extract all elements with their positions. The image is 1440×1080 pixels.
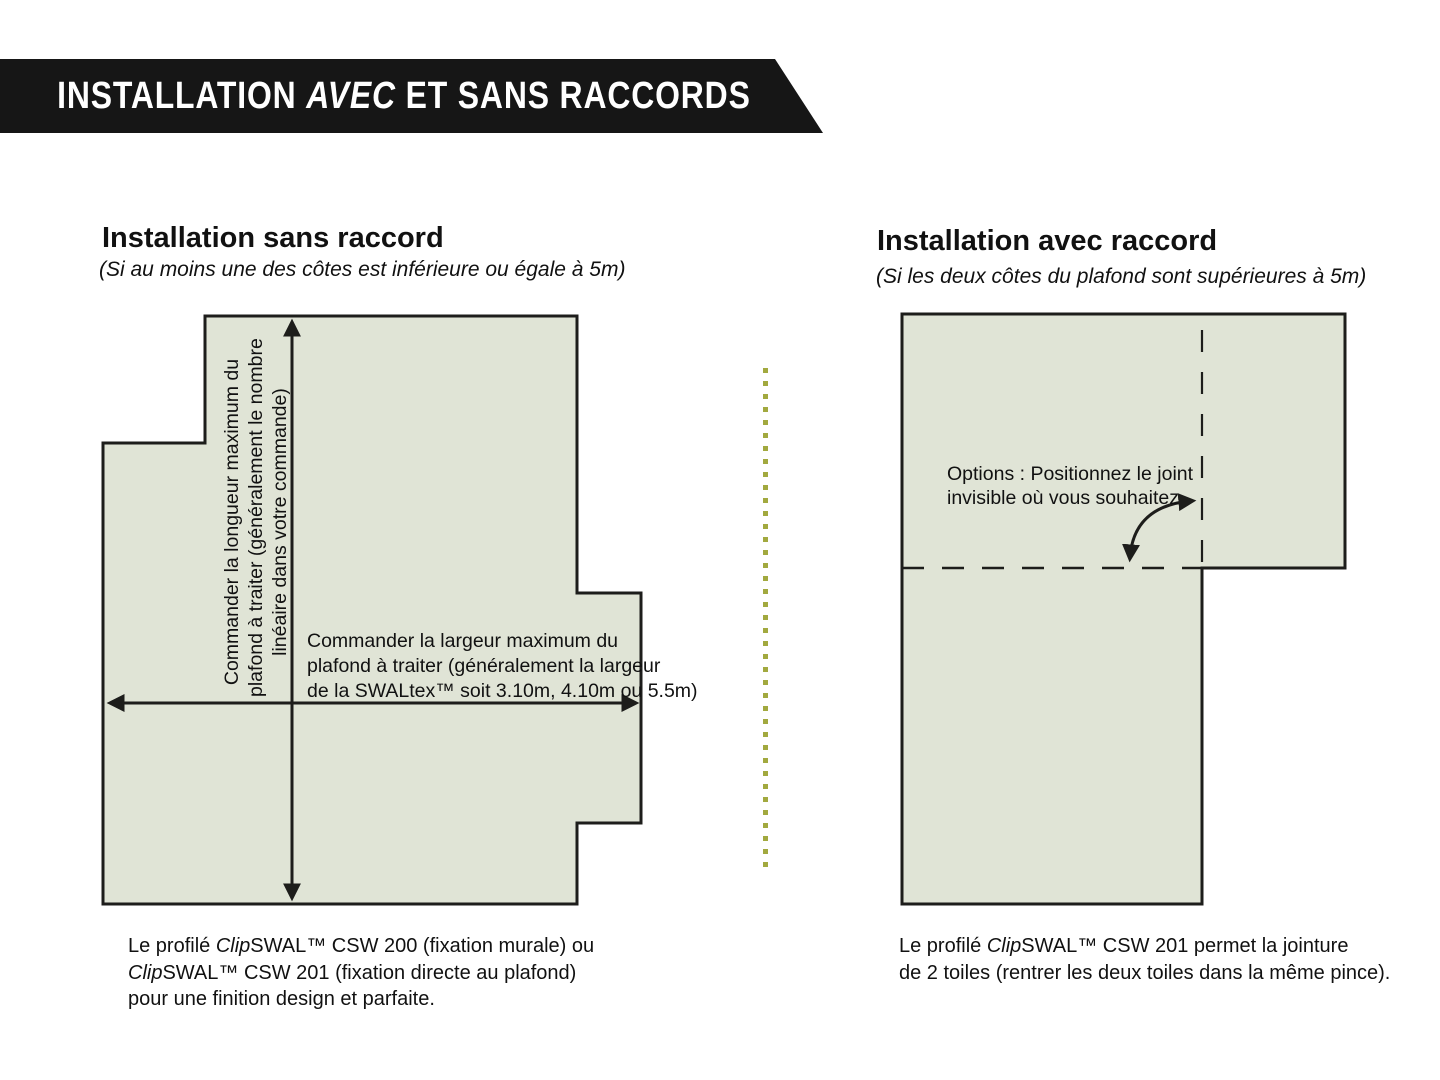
left-section-subtitle: (Si au moins une des côtes est inférieur… — [99, 258, 625, 282]
left-caption-line: Le profilé ClipSWAL™ CSW 200 (fixation m… — [128, 933, 594, 960]
ceiling-plan-with-joint — [880, 300, 1370, 920]
joint-options-label: Options : Positionnez le joint invisible… — [947, 462, 1193, 510]
right-caption-line: Le profilé ClipSWAL™ CSW 201 permet la j… — [899, 933, 1390, 960]
right-section-subtitle: (Si les deux côtes du plafond sont supér… — [876, 265, 1366, 289]
width-dimension-label: Commander la largeur maximum du plafond … — [307, 629, 698, 704]
left-caption-line: ClipSWAL™ CSW 201 (fixation directe au p… — [128, 960, 594, 987]
left-caption: Le profilé ClipSWAL™ CSW 200 (fixation m… — [128, 933, 594, 1013]
length-label-line: linéaire dans votre commande) — [268, 347, 292, 697]
ceiling-plan-without-joint — [90, 300, 660, 920]
length-label-line: plafond à traiter (généralement le nombr… — [244, 347, 268, 697]
length-dimension-label: Commander la longueur maximum du plafond… — [220, 347, 292, 697]
length-label-line: Commander la longueur maximum du — [220, 347, 244, 697]
ceiling-shape-left — [103, 316, 641, 904]
width-label-line: Commander la largeur maximum du — [307, 629, 698, 654]
right-section-heading: Installation avec raccord — [877, 225, 1217, 258]
dotted-divider — [763, 368, 768, 874]
title-banner: INSTALLATION AVEC ET SANS RACCORDS — [0, 59, 823, 133]
options-label-line: invisible où vous souhaitez — [947, 486, 1193, 510]
left-caption-line: pour une finition design et parfaite. — [128, 986, 594, 1013]
ceiling-shape-right — [902, 314, 1345, 904]
options-label-line: Options : Positionnez le joint — [947, 462, 1193, 486]
width-label-line: plafond à traiter (généralement la large… — [307, 654, 698, 679]
right-caption: Le profilé ClipSWAL™ CSW 201 permet la j… — [899, 933, 1390, 986]
brochure-page: INSTALLATION AVEC ET SANS RACCORDS Insta… — [0, 0, 1440, 1080]
right-caption-line: de 2 toiles (rentrer les deux toiles dan… — [899, 960, 1390, 987]
left-section-heading: Installation sans raccord — [102, 222, 444, 255]
page-title: INSTALLATION AVEC ET SANS RACCORDS — [0, 75, 751, 118]
width-label-line: de la SWALtex™ soit 3.10m, 4.10m ou 5.5m… — [307, 679, 698, 704]
